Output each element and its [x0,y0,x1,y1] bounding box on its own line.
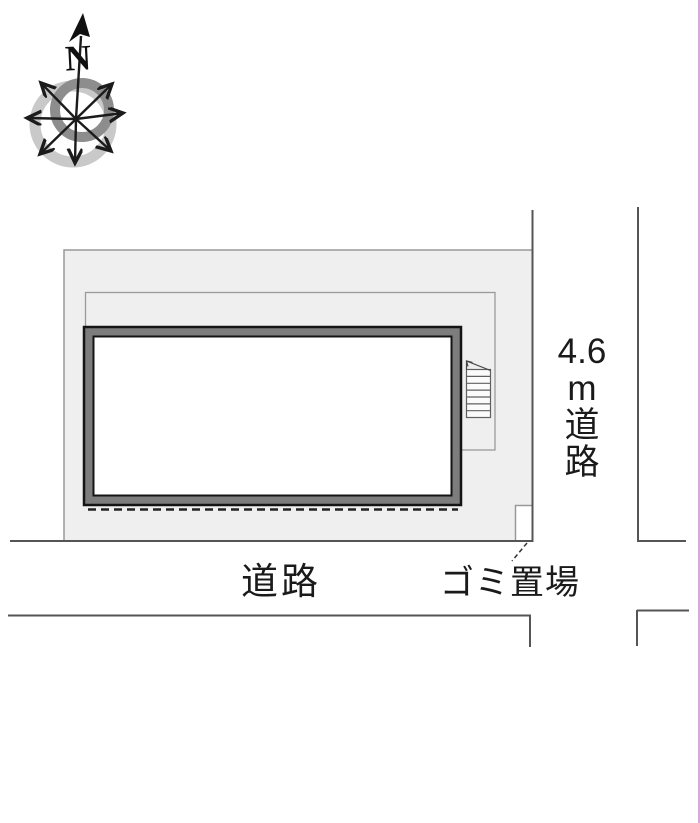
south-road-label: 道路 [241,551,321,605]
east-road-label-line: 路 [551,444,613,481]
compass-north-label: N [64,37,92,78]
garbage-spot [516,506,534,543]
building-footprint [84,327,461,505]
garbage-area-label: ゴミ置場 [440,555,580,604]
stairs-icon [467,361,491,418]
compass-rose-icon: N [27,13,123,163]
building-inner [94,337,452,496]
east-road-label-line: 道 [551,407,613,444]
east-road-label-line: 4.6 [551,333,613,370]
east-road-label: 4.6 m 道 路 [551,333,613,481]
east-road-label-line: m [551,370,613,407]
site-plan-page: N 道路 ゴミ置場 4.6 m 道 路 [0,0,700,823]
